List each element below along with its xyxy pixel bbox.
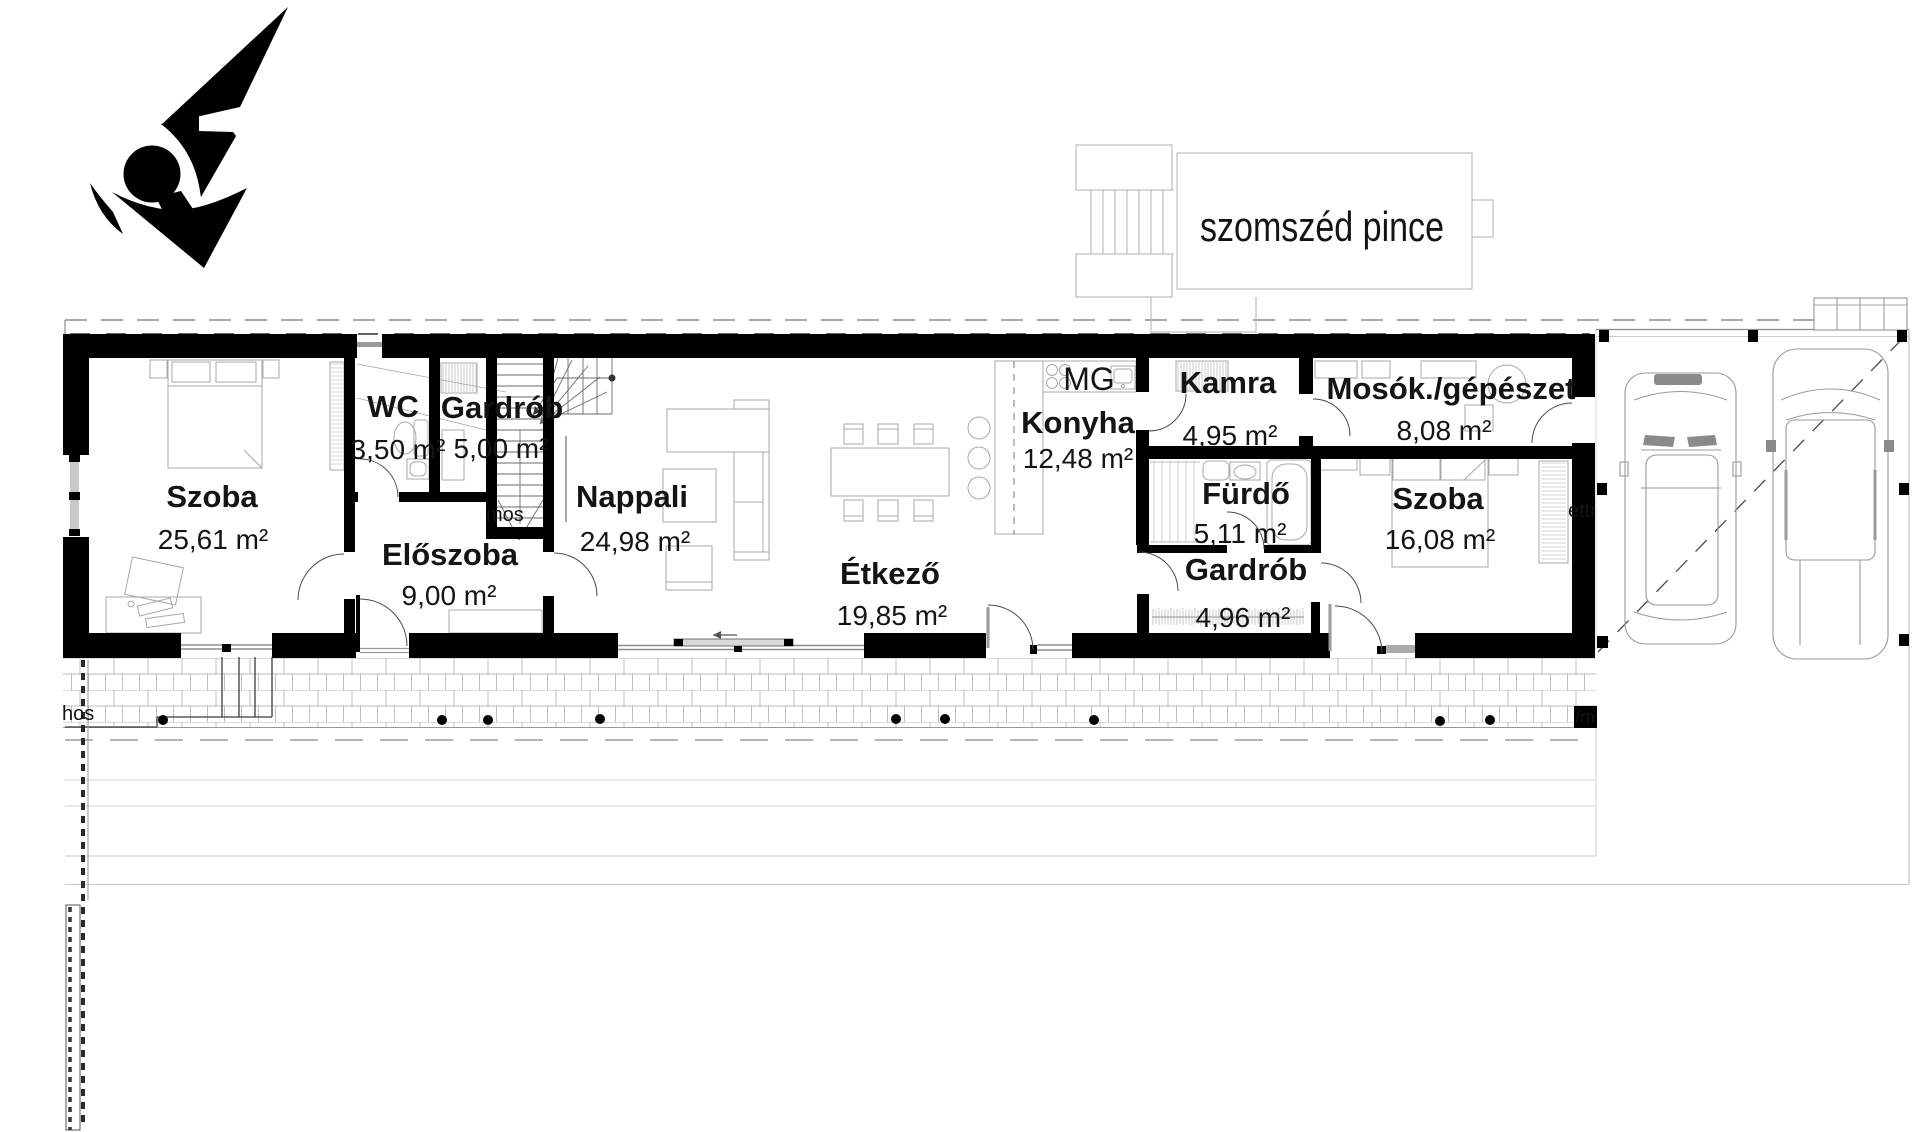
svg-text:mos: mos (486, 504, 524, 526)
svg-text:Kamra: Kamra (1180, 365, 1277, 400)
svg-text:Fürdő: Fürdő (1202, 476, 1290, 511)
svg-text:szomszéd pince: szomszéd pince (1200, 203, 1444, 250)
svg-text:Szoba: Szoba (166, 479, 258, 514)
svg-text:8,08 m²: 8,08 m² (1397, 415, 1492, 446)
svg-text:16,08 m²: 16,08 m² (1385, 524, 1496, 555)
svg-text:Mosók./gépészet: Mosók./gépészet (1327, 371, 1576, 406)
svg-text:Nappali: Nappali (576, 479, 688, 514)
svg-text:hos: hos (62, 703, 94, 725)
svg-text:Gardrób: Gardrób (1185, 552, 1307, 587)
svg-text:5,00 m²: 5,00 m² (454, 433, 549, 464)
svg-text:4,96 m²: 4,96 m² (1196, 602, 1291, 633)
svg-text:Szoba: Szoba (1392, 481, 1484, 516)
svg-text:3,50 m²: 3,50 m² (351, 434, 446, 465)
svg-text:9,00 m²: 9,00 m² (402, 580, 497, 611)
svg-text:MG: MG (1063, 361, 1115, 397)
svg-text:19,85 m²: 19,85 m² (837, 600, 948, 631)
svg-text:/m: /m (1575, 707, 1595, 727)
svg-text:etti: etti (1568, 500, 1595, 522)
svg-text:Gardrób: Gardrób (441, 390, 563, 425)
svg-text:Étkező: Étkező (840, 556, 940, 591)
svg-text:12,48 m²: 12,48 m² (1023, 443, 1134, 474)
svg-text:Előszoba: Előszoba (382, 537, 519, 572)
svg-text:25,61 m²: 25,61 m² (158, 524, 269, 555)
svg-text:24,98 m²: 24,98 m² (580, 526, 691, 557)
svg-text:4,95 m²: 4,95 m² (1183, 420, 1278, 451)
svg-text:Konyha: Konyha (1021, 405, 1135, 440)
svg-text:5,11 m²: 5,11 m² (1194, 518, 1287, 549)
svg-text:WC: WC (367, 389, 419, 424)
